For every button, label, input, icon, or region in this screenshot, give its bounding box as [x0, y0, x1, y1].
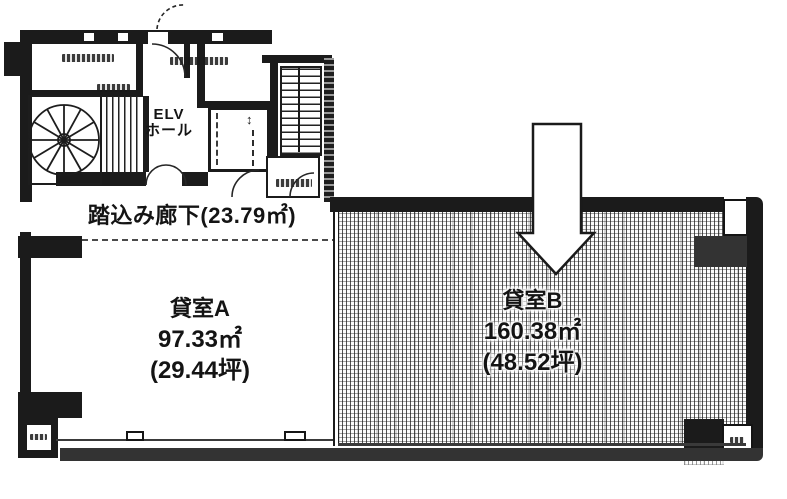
floor-plan: ↕ ELV ホール 踏込み廊下(23.79㎡)	[0, 0, 787, 499]
door-swing-arcs	[146, 5, 314, 197]
down-arrow-icon	[518, 124, 594, 274]
spiral-stair-icon	[29, 96, 101, 184]
plan-overlay	[0, 0, 787, 499]
